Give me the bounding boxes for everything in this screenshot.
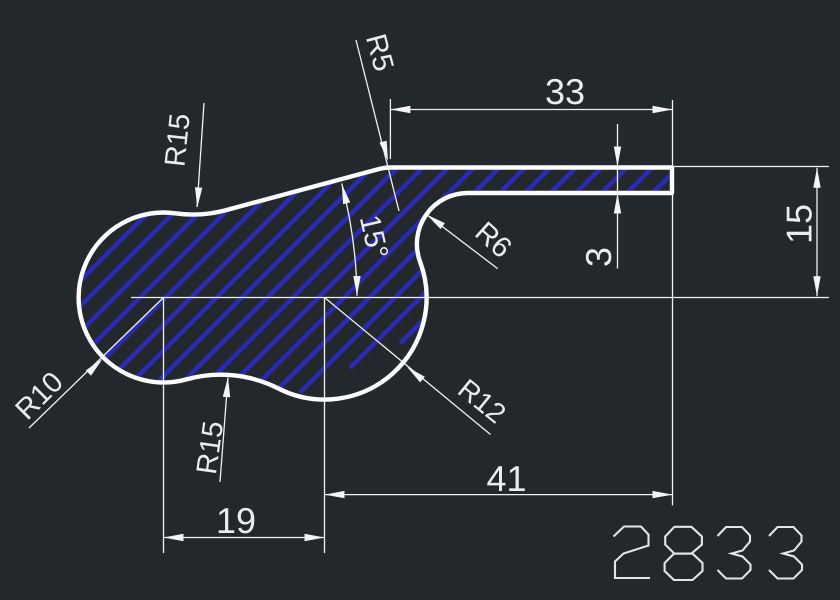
svg-text:41: 41 xyxy=(486,458,526,499)
svg-text:33: 33 xyxy=(545,71,585,112)
svg-text:3: 3 xyxy=(578,247,619,267)
svg-text:R15: R15 xyxy=(159,112,196,168)
svg-text:19: 19 xyxy=(216,500,256,541)
svg-text:15: 15 xyxy=(779,204,820,244)
